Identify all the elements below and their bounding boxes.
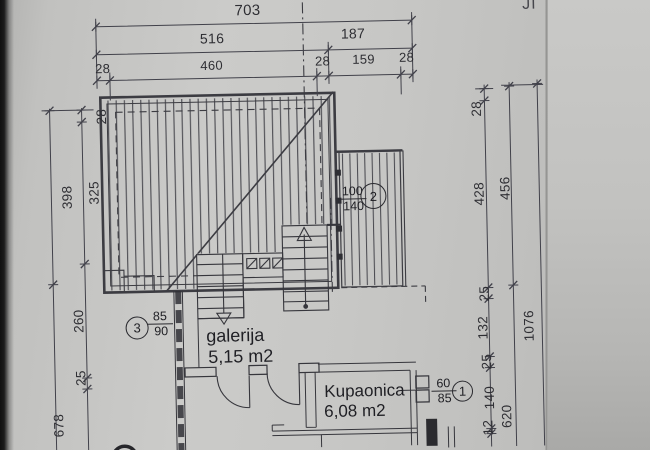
dim-left-678: 678: [52, 414, 66, 438]
dim-top-159: 159: [352, 52, 375, 65]
dim-right-140: 140: [483, 386, 497, 410]
dim-right-1076: 1076: [522, 310, 536, 342]
opening-1-height: 85: [438, 392, 452, 405]
bottom-wall: [272, 422, 417, 448]
room-label-galerija: galerija: [206, 325, 264, 347]
dim-left-398: 398: [60, 186, 74, 210]
dim-right-28: 28: [470, 101, 484, 117]
dimension-lines-top: [96, 20, 413, 81]
scanned-page: JI 703 516 187 28 460 28 159 28 398 678 …: [0, 0, 650, 450]
marker-number-1: 1: [459, 384, 467, 399]
opening-3-height: 90: [154, 325, 168, 338]
dim-top-28b: 28: [315, 54, 330, 67]
doors: [217, 373, 300, 409]
opening-1-width: 60: [436, 377, 450, 390]
bathroom-right-wall: [410, 370, 418, 445]
wall-section-block: [426, 419, 438, 446]
opening-3-width: 85: [153, 310, 167, 323]
window-jamb-upper: [416, 376, 429, 388]
dim-top-28c: 28: [399, 51, 414, 64]
tick-bars-left: [45, 110, 93, 390]
dim-right-620: 620: [500, 404, 514, 428]
dimension-lines-left: [42, 108, 101, 450]
bathroom-top-wall: [318, 362, 416, 372]
dim-right-132: 132: [476, 316, 490, 340]
floor-plan-drawing: JI 703 516 187 28 460 28 159 28 398 678 …: [0, 0, 650, 450]
dim-top-460: 460: [200, 59, 223, 72]
room-label-kupaonica: Kupaonica: [324, 380, 405, 402]
page-left-shadow: [0, 0, 14, 450]
dim-left-25: 25: [74, 370, 88, 386]
dim-right-25a: 25: [478, 286, 492, 302]
left-wall: [178, 291, 181, 450]
door-swing-left: [217, 376, 250, 409]
dim-top-516: 516: [200, 31, 225, 46]
door-swing-right: [267, 373, 300, 406]
dim-right-428: 428: [472, 182, 486, 206]
dim-right-456: 456: [498, 176, 512, 200]
label-leader-line: [402, 390, 429, 391]
tick-slashes-top: [92, 16, 417, 85]
dim-left-325: 325: [87, 181, 101, 205]
marker-number-3: 3: [133, 320, 141, 335]
tick-bars-right: [479, 83, 549, 433]
dim-top-187: 187: [341, 26, 366, 41]
room-area-galerija: 5,15 m2: [208, 346, 273, 368]
dim-top-703: 703: [234, 3, 260, 19]
dim-right-12: 12: [481, 420, 495, 436]
dim-left-28: 28: [95, 109, 109, 125]
window-jamb-lower: [416, 390, 429, 402]
room-area-kupaonica: 6,08 m2: [324, 401, 386, 422]
partial-marker-circle: [113, 446, 137, 450]
dim-left-260: 260: [72, 309, 86, 333]
terrace-hatch-area: [334, 150, 425, 304]
dim-right-25b: 25: [480, 354, 494, 370]
orientation-label-ji: JI: [522, 0, 537, 14]
bathroom-left-wall: [305, 372, 316, 427]
dim-top-28a: 28: [95, 62, 110, 75]
marker-number-2: 2: [370, 188, 378, 203]
